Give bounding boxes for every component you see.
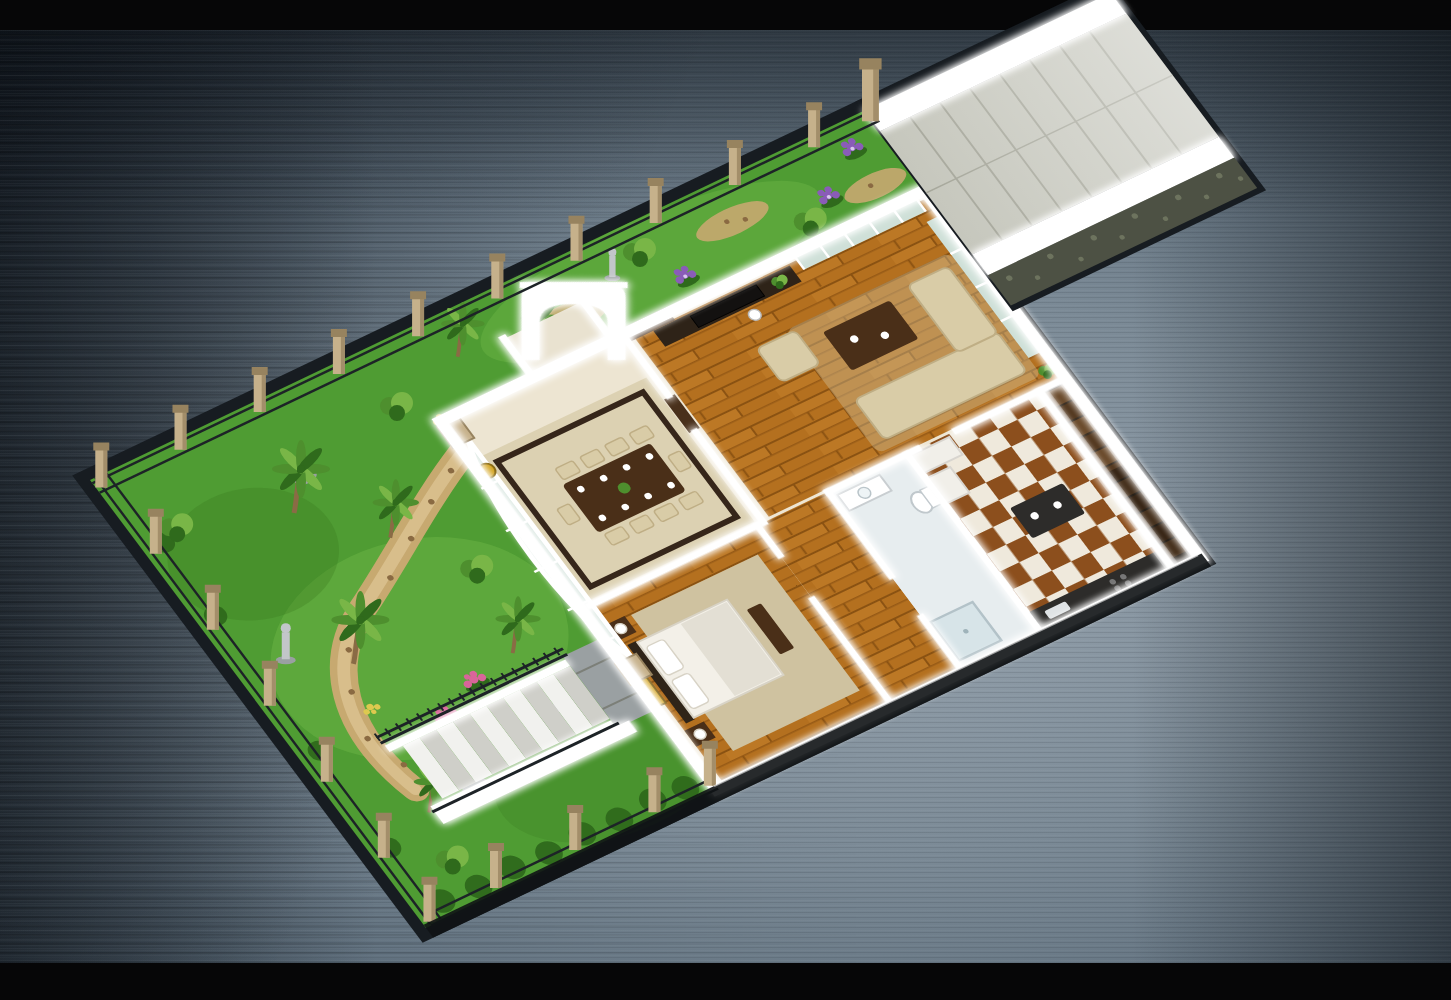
- floor-plan-render: [0, 0, 1451, 1000]
- screenshot-stage: [0, 0, 1451, 1000]
- isometric-lot: [49, 0, 1451, 943]
